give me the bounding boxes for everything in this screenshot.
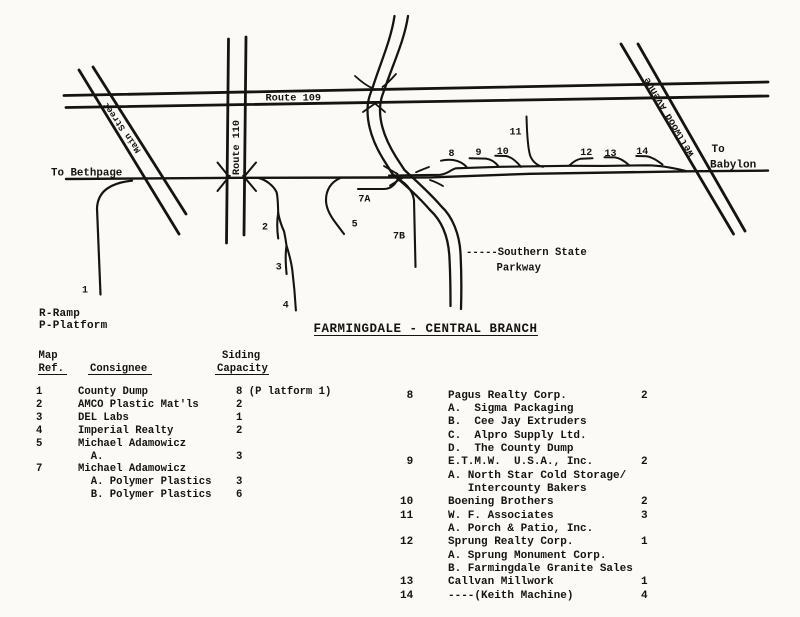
svg-text:1: 1: [82, 285, 88, 296]
svg-text:13: 13: [605, 149, 617, 160]
svg-text:12: 12: [580, 148, 592, 159]
svg-text:To Bethpage: To Bethpage: [51, 168, 122, 180]
svg-text:Babylon: Babylon: [710, 159, 756, 171]
svg-text:9: 9: [476, 148, 482, 159]
svg-text:7B: 7B: [393, 231, 405, 242]
svg-text:7A: 7A: [358, 195, 370, 206]
svg-text:-----Southern State: -----Southern State: [466, 247, 587, 259]
svg-text:8: 8: [449, 149, 455, 160]
svg-text:Route 109: Route 109: [266, 93, 322, 105]
svg-text:10: 10: [497, 147, 509, 158]
svg-text:Route 110: Route 110: [232, 120, 243, 175]
svg-text:11: 11: [510, 127, 522, 138]
svg-text:14: 14: [636, 147, 648, 158]
svg-text:Parkway: Parkway: [497, 263, 542, 275]
svg-text:3: 3: [276, 263, 282, 274]
svg-text:To: To: [712, 144, 726, 156]
svg-text:4: 4: [283, 301, 289, 312]
svg-text:Wellwood Avenue: Wellwood Avenue: [642, 75, 698, 159]
svg-text:5: 5: [352, 220, 358, 231]
svg-text:Main Street: Main Street: [101, 100, 143, 154]
svg-text:2: 2: [262, 222, 268, 233]
